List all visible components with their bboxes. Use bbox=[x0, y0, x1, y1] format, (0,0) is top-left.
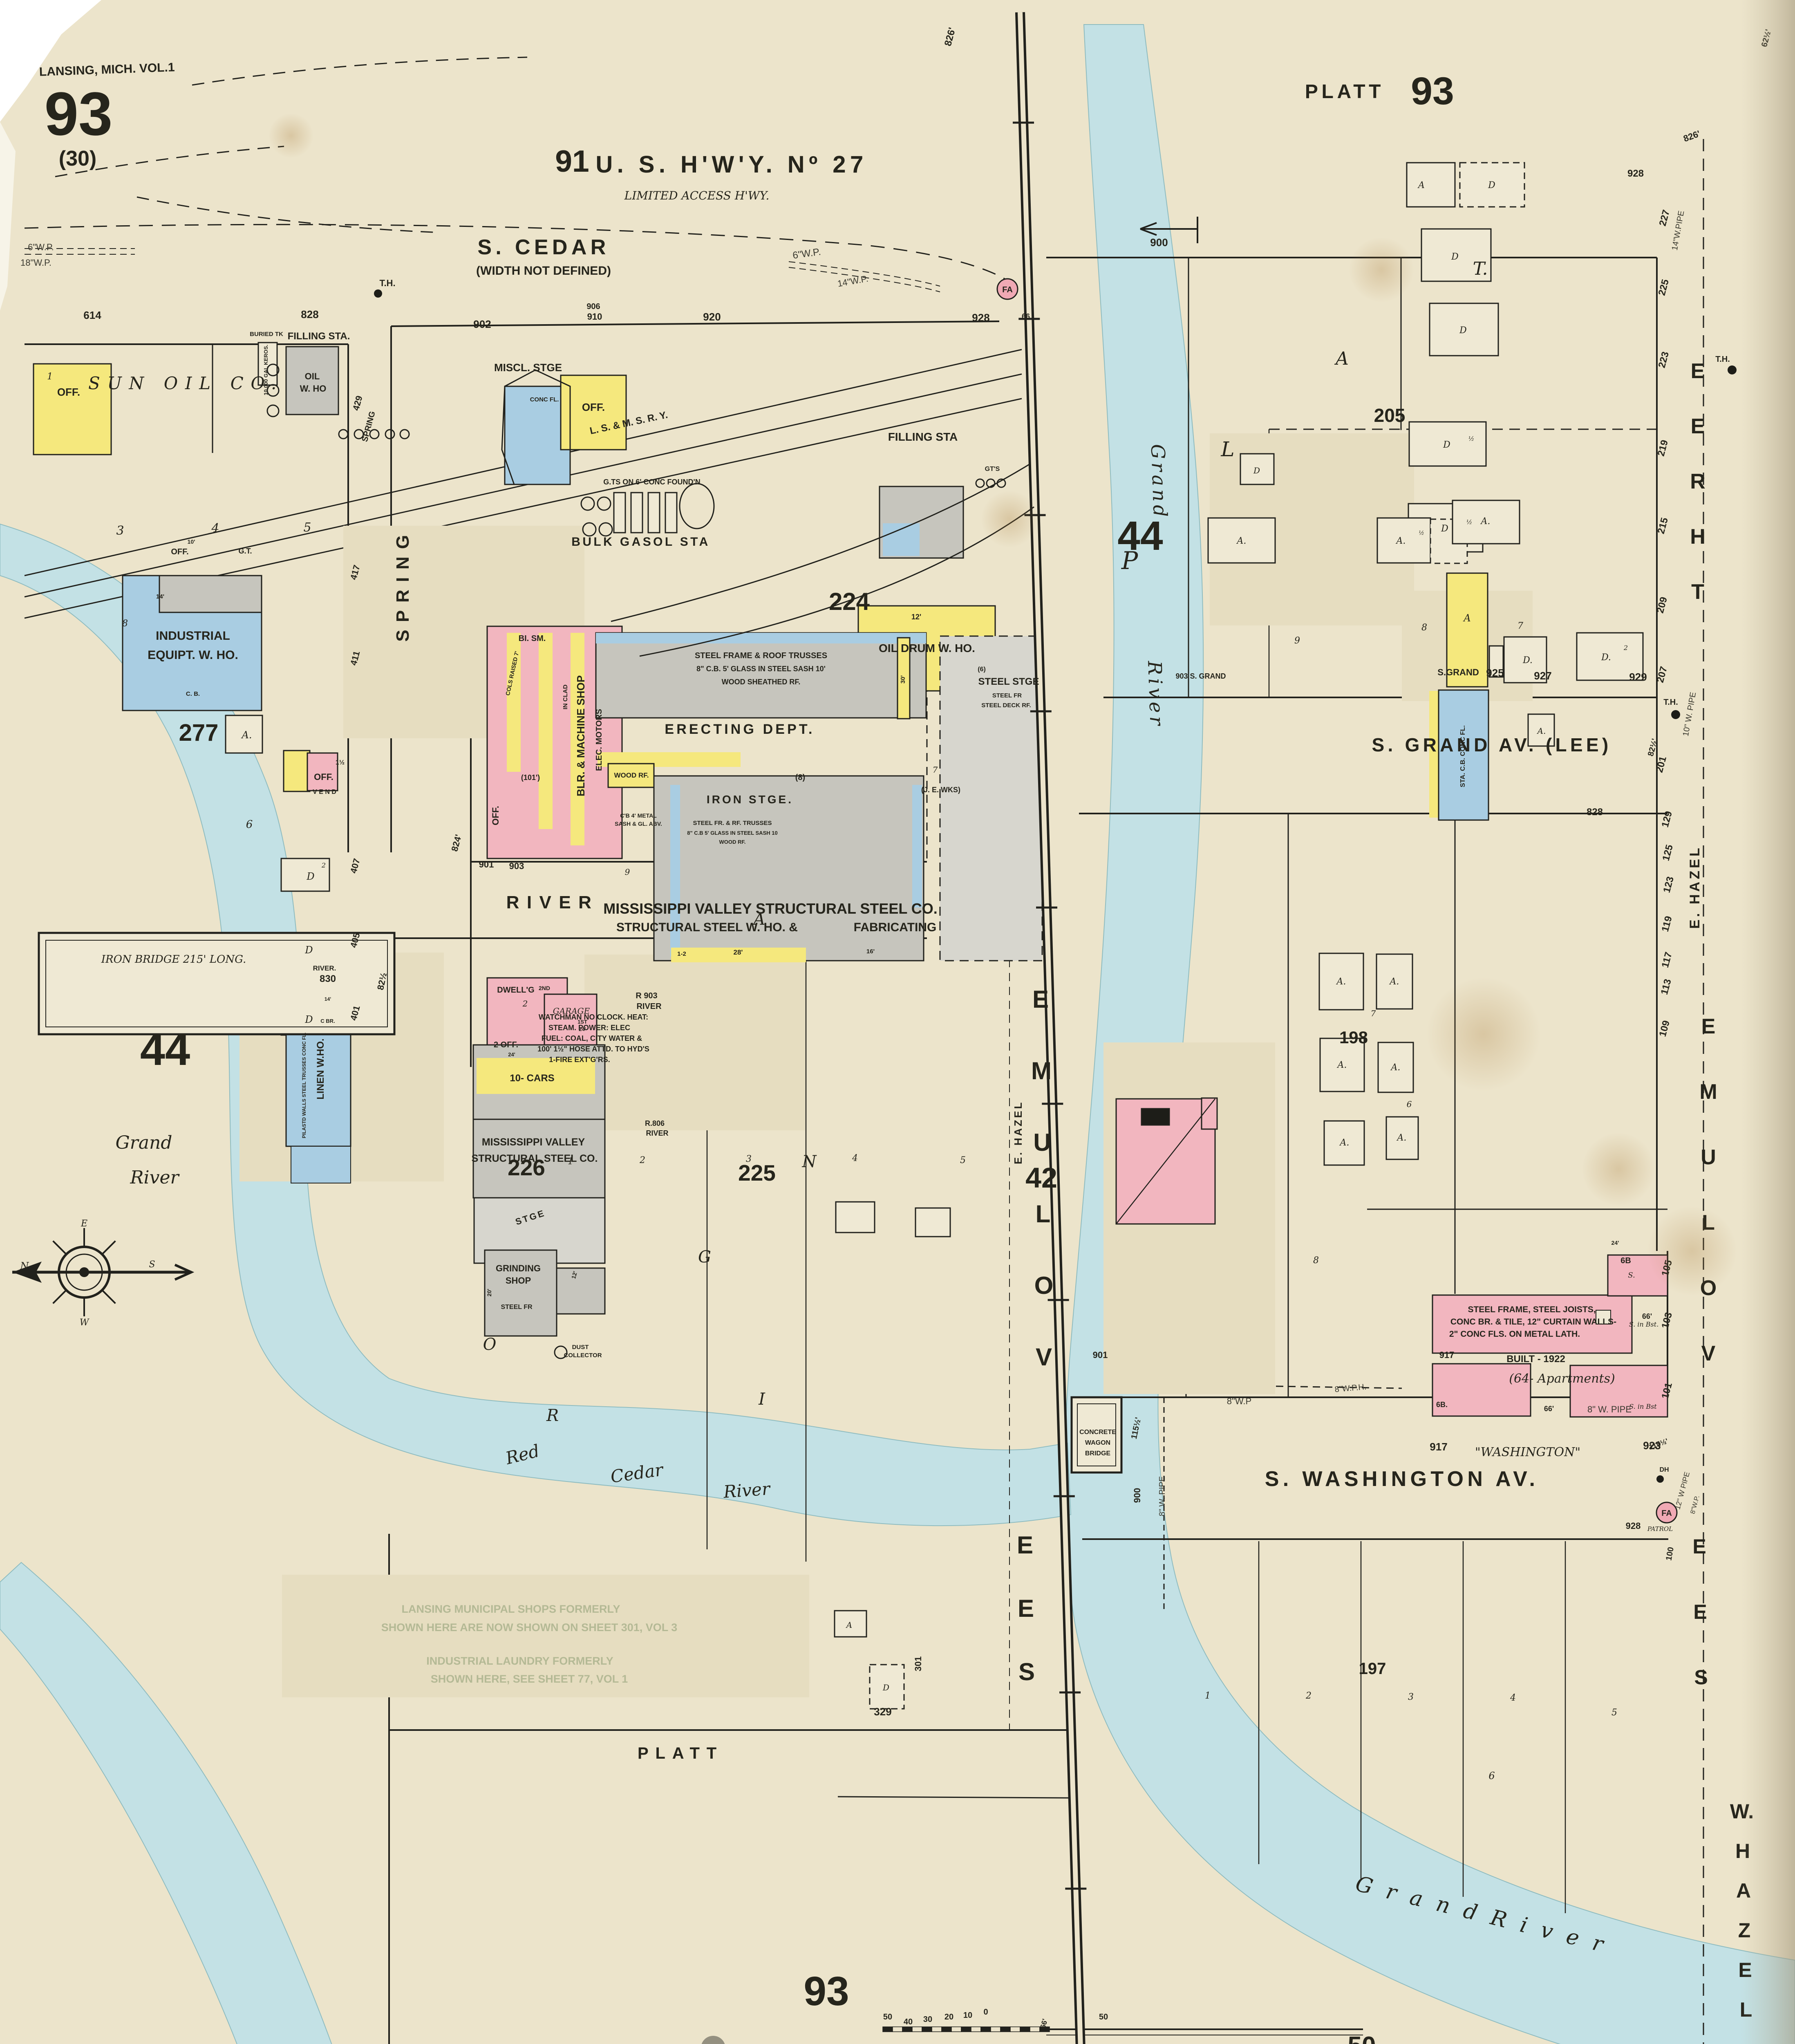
map-label: (WIDTH NOT DEFINED) bbox=[476, 264, 611, 278]
map-label: D bbox=[1459, 325, 1467, 336]
map-label: PILASTD WALLS STEEL TRUSSES CONC FL. bbox=[301, 1033, 307, 1138]
map-label: WOOD RF. bbox=[719, 839, 746, 845]
map-label: 1 bbox=[1205, 1691, 1211, 1701]
map-label: 906 bbox=[586, 302, 600, 311]
building-footprint bbox=[883, 523, 920, 556]
map-label: River bbox=[130, 1167, 180, 1188]
scale-bar-segment bbox=[942, 2027, 951, 2032]
block-44-left: 44 bbox=[140, 1024, 190, 1075]
tank-circle bbox=[1671, 710, 1680, 719]
map-label: A. bbox=[1336, 977, 1346, 987]
map-label: FABRICATING bbox=[854, 921, 937, 934]
map-label: C. B. bbox=[186, 690, 200, 697]
map-label: 928 bbox=[972, 312, 989, 324]
block-205: 205 bbox=[1374, 405, 1406, 426]
map-label: 30 bbox=[923, 2015, 932, 2024]
map-label: E bbox=[1691, 359, 1705, 383]
map-label: MISSISSIPPI VALLEY bbox=[482, 1136, 585, 1148]
map-label: E bbox=[1691, 415, 1705, 438]
map-label: 10- CARS bbox=[510, 1073, 554, 1084]
map-label: INDUSTRIAL LAUNDRY FORMERLY bbox=[426, 1655, 613, 1667]
map-label: River bbox=[723, 1479, 772, 1502]
map-label: A. bbox=[1339, 1138, 1350, 1148]
map-label: 2ND bbox=[539, 985, 550, 991]
map-label: RIVER. bbox=[313, 964, 336, 972]
scale-bar-segment bbox=[991, 2027, 1000, 2032]
page-edge-shadow bbox=[1741, 0, 1795, 2044]
map-label: 2" CONC FLS. ON METAL LATH. bbox=[1449, 1329, 1580, 1339]
map-label: GT'S bbox=[985, 466, 1000, 473]
map-label: 900 bbox=[1150, 236, 1168, 249]
map-label: 5 bbox=[960, 1155, 966, 1165]
scale-bar-segment bbox=[1020, 2027, 1030, 2032]
sheet-number-top-right: 93 bbox=[1411, 69, 1454, 113]
map-label: D bbox=[1488, 180, 1495, 191]
map-label: D bbox=[882, 1683, 889, 1692]
map-label: 1-FIRE EXT'G'RS. bbox=[549, 1056, 610, 1064]
map-label: DWELL'G bbox=[497, 986, 534, 995]
scale-bar-segment bbox=[951, 2027, 961, 2032]
map-label: 14' bbox=[325, 996, 331, 1002]
map-label: O bbox=[1034, 1272, 1054, 1299]
map-label: G bbox=[698, 1248, 711, 1266]
map-label: A bbox=[1463, 612, 1470, 624]
building-footprint bbox=[648, 493, 660, 533]
map-label: R 903 bbox=[636, 991, 657, 1000]
map-label: MISCL. STGE bbox=[494, 361, 562, 374]
map-label: 66 bbox=[1022, 312, 1030, 320]
building-footprint bbox=[584, 955, 805, 1130]
map-label: (J. E. WKS) bbox=[921, 786, 960, 794]
map-label: 329 bbox=[874, 1706, 891, 1718]
sheet-number-50: 50 bbox=[1348, 2032, 1376, 2044]
map-label: G.TS ON 6' CONC FOUND'N bbox=[603, 478, 701, 486]
map-label: H bbox=[1690, 525, 1705, 549]
map-label: WAGON bbox=[1085, 1439, 1110, 1446]
map-label: D bbox=[1253, 466, 1260, 475]
map-label: SHOWN HERE, SEE SHEET 77, VOL 1 bbox=[431, 1673, 628, 1685]
building-footprint bbox=[915, 1208, 950, 1237]
map-label: D bbox=[1443, 440, 1450, 450]
map-label: S bbox=[1018, 1658, 1035, 1685]
map-label: WATCHMAN NO CLOCK. HEAT: bbox=[539, 1013, 648, 1021]
map-label: R bbox=[1690, 470, 1705, 493]
map-label: WOOD RF. bbox=[614, 771, 649, 779]
map-label: 900 bbox=[1132, 1488, 1142, 1503]
map-label: (6) bbox=[978, 666, 986, 673]
map-label: A. bbox=[241, 729, 252, 741]
map-label: (101') bbox=[521, 773, 540, 782]
map-label: 902 bbox=[473, 318, 491, 330]
map-label: V bbox=[1701, 1342, 1716, 1365]
map-label: 24' bbox=[1611, 1239, 1619, 1246]
map-label: GRINDING bbox=[496, 1263, 541, 1273]
map-label: 828 bbox=[301, 308, 318, 320]
miss-valley-steel: MISSISSIPPI VALLEY STRUCTURAL STEEL CO. bbox=[603, 900, 937, 917]
map-label: 4 bbox=[211, 521, 219, 536]
map-label: G.T. bbox=[238, 547, 252, 555]
map-label: 830 bbox=[320, 973, 336, 984]
map-label: BURIED TK bbox=[250, 331, 283, 338]
map-label: CONCRETE bbox=[1079, 1429, 1116, 1436]
map-label: ELEC. MOTORS bbox=[595, 709, 604, 771]
building-footprint bbox=[614, 493, 625, 533]
paper-stain bbox=[1647, 1206, 1737, 1296]
map-label: OFF. bbox=[171, 547, 188, 556]
map-label: S. bbox=[1628, 1271, 1635, 1280]
scale-bar-segment bbox=[971, 2027, 981, 2032]
street-platt-top: PLATT bbox=[1305, 81, 1384, 103]
map-label: OIL bbox=[305, 371, 320, 381]
map-label: S.GRAND bbox=[1437, 667, 1479, 677]
map-label: C BR. bbox=[320, 1018, 335, 1024]
scale-bar-segment bbox=[912, 2027, 922, 2032]
map-label: 8" W. PIPE bbox=[1158, 1476, 1167, 1516]
map-label: S. in Bst. bbox=[1629, 1320, 1659, 1328]
map-label: 9 bbox=[625, 867, 630, 877]
map-label: 8" C.B. 5' GLASS IN STEEL SASH 10' bbox=[696, 665, 826, 673]
map-label: COLLECTOR bbox=[564, 1352, 602, 1359]
map-label: E bbox=[1701, 1015, 1716, 1038]
map-label: RIVER bbox=[646, 1129, 668, 1137]
map-label: OFF. bbox=[314, 772, 333, 782]
map-label: LANSING MUNICIPAL SHOPS FORMERLY bbox=[401, 1603, 620, 1615]
map-label: 2 bbox=[522, 999, 528, 1009]
map-label: 0 bbox=[983, 2008, 988, 2017]
map-label: OFF. bbox=[582, 401, 605, 413]
building-footprint bbox=[39, 933, 394, 1034]
map-label: OFF. bbox=[57, 386, 80, 398]
sheet-number-bottom: 93 bbox=[803, 1968, 849, 2014]
building-footprint bbox=[631, 493, 642, 533]
map-label: IN CLAD bbox=[562, 684, 569, 709]
street-e-hazel-right: E. HAZEL bbox=[1687, 845, 1703, 929]
street-spring: SPRING bbox=[393, 527, 413, 642]
map-label: A. bbox=[1397, 1133, 1407, 1143]
map-label: 10 bbox=[963, 2011, 972, 2020]
map-label: D bbox=[306, 871, 314, 882]
map-label: ERECTING DEPT. bbox=[665, 722, 815, 737]
map-label: Grand bbox=[1147, 444, 1171, 520]
map-label: E bbox=[1692, 1535, 1706, 1558]
building-footprint bbox=[291, 1146, 351, 1183]
map-label: FILLING STA. bbox=[288, 331, 350, 342]
map-label: 7 bbox=[933, 765, 938, 775]
map-label: (64- Apartments) bbox=[1509, 1372, 1615, 1386]
map-label: 20 bbox=[945, 2013, 953, 2022]
map-label: A. bbox=[1236, 536, 1247, 546]
map-label: P bbox=[1121, 547, 1139, 575]
map-label: SHOWN HERE ARE NOW SHOWN ON SHEET 301, V… bbox=[381, 1621, 678, 1634]
block-198: 198 bbox=[1339, 1028, 1368, 1047]
map-label: E bbox=[1018, 1595, 1034, 1622]
map-label: S. in Bst bbox=[1629, 1403, 1657, 1410]
map-label: 100' 1½" HOSE ATTD. TO HYD'S bbox=[537, 1045, 649, 1053]
map-label: 24' bbox=[508, 1051, 515, 1058]
map-label: 6"W.P. bbox=[28, 242, 54, 252]
map-label: 7 bbox=[1517, 621, 1523, 631]
map-label: 18"W.P. bbox=[20, 258, 51, 268]
map-label: 20' bbox=[486, 1289, 492, 1297]
sanborn-map-sheet: LANSING, MICH. VOL.193(30)PLATT9391U. S.… bbox=[0, 0, 1795, 2044]
map-label: L bbox=[1220, 437, 1234, 461]
map-label: OFF. bbox=[490, 806, 501, 825]
map-label: ½ bbox=[1419, 530, 1424, 536]
map-label: 901 bbox=[479, 859, 494, 870]
map-label: 903 bbox=[509, 861, 524, 871]
map-label: N bbox=[20, 1260, 29, 1272]
map-label: (30) bbox=[59, 147, 96, 170]
map-label: 8 bbox=[122, 619, 128, 629]
building-footprint bbox=[1407, 163, 1455, 207]
map-label: 3 bbox=[116, 524, 124, 538]
map-label: STEEL FRAME, STEEL JOISTS, bbox=[1468, 1305, 1596, 1314]
map-label: WOOD SHEATHED RF. bbox=[722, 678, 801, 686]
street-river: RIVER bbox=[506, 892, 599, 912]
tank-circle bbox=[1656, 1475, 1664, 1483]
map-label: A bbox=[1417, 180, 1425, 191]
map-label: I bbox=[758, 1390, 765, 1409]
map-label: ½ bbox=[1468, 435, 1475, 442]
paper-stain bbox=[269, 113, 313, 158]
map-label: 6B. bbox=[1436, 1401, 1448, 1409]
map-label: STEAM. POWER: ELEC bbox=[548, 1024, 630, 1032]
map-label: BUILT - 1922 bbox=[1506, 1354, 1565, 1365]
map-label: PATROL bbox=[1647, 1525, 1673, 1533]
map-label: IRON STGE. bbox=[707, 793, 793, 806]
map-label: E bbox=[1693, 1600, 1707, 1623]
map-label: 929 bbox=[1629, 671, 1647, 683]
map-label: 7 bbox=[1371, 1009, 1376, 1018]
block-225: 225 bbox=[738, 1160, 776, 1186]
map-label: T.H. bbox=[1663, 698, 1678, 707]
map-label: 1 bbox=[47, 372, 53, 382]
map-label: 910 bbox=[587, 312, 602, 322]
building-footprint bbox=[284, 751, 310, 791]
map-label: BRIDGE bbox=[1085, 1450, 1111, 1457]
scale-bar-segment bbox=[883, 2027, 893, 2032]
map-label: INDUSTRIAL bbox=[156, 629, 230, 643]
map-label: 4 bbox=[852, 1153, 858, 1163]
map-label: 4 bbox=[1510, 1693, 1516, 1703]
map-label: River bbox=[1144, 660, 1168, 729]
map-label: 928 bbox=[1626, 1521, 1641, 1531]
map-label: 828 bbox=[1587, 807, 1603, 818]
map-label: L bbox=[1036, 1200, 1051, 1228]
map-label: T.H. bbox=[379, 278, 395, 288]
map-label: 8" C.B 5' GLASS IN STEEL SASH 10 bbox=[687, 830, 777, 836]
map-label: T bbox=[1691, 580, 1704, 604]
map-label: A bbox=[846, 1620, 852, 1630]
street-s-grand: S. GRAND AV. (LEE) bbox=[1372, 734, 1612, 755]
paper-stain bbox=[1582, 1132, 1655, 1206]
map-label: STEEL STGE bbox=[978, 676, 1039, 687]
scale-bar-segment bbox=[961, 2027, 971, 2032]
map-label: 2 bbox=[321, 861, 326, 869]
map-label: E bbox=[81, 1219, 87, 1229]
tank-circle bbox=[374, 289, 382, 298]
map-label: 66' bbox=[1642, 1312, 1652, 1320]
building-footprint bbox=[159, 576, 262, 612]
map-label: ½ bbox=[1466, 518, 1473, 526]
map-label: 928 bbox=[1627, 168, 1644, 179]
map-label: D bbox=[1451, 252, 1459, 262]
map-label: 6B bbox=[1620, 1256, 1631, 1265]
building-footprint bbox=[539, 633, 553, 829]
map-label: CONC BR. & TILE, 12" CURTAIN WALLS- bbox=[1450, 1317, 1616, 1327]
block-42: 42 bbox=[1025, 1162, 1057, 1194]
map-label: 12' bbox=[911, 613, 921, 621]
scale-bar-segment bbox=[893, 2027, 902, 2032]
map-label: U bbox=[1701, 1145, 1716, 1169]
building-footprint bbox=[836, 1202, 875, 1233]
map-label: SASH & GL. ABV. bbox=[615, 820, 662, 827]
map-label: 3 bbox=[1408, 1692, 1414, 1702]
map-label: D bbox=[1441, 524, 1448, 534]
map-label: STEEL FR. & RF. TRUSSES bbox=[693, 820, 772, 827]
scale-bar-segment bbox=[1000, 2027, 1010, 2032]
map-label: U bbox=[1033, 1129, 1051, 1156]
map-label: 14' bbox=[156, 593, 164, 600]
map-label: FA bbox=[1002, 285, 1013, 294]
map-label: 10,000 GAL KEROS. bbox=[263, 345, 269, 395]
map-label: STEEL FR bbox=[992, 692, 1022, 699]
map-label: 2 bbox=[639, 1155, 645, 1165]
map-label: S bbox=[1694, 1666, 1708, 1689]
map-canvas: LANSING, MICH. VOL.193(30)PLATT9391U. S.… bbox=[0, 0, 1795, 2044]
map-label: D bbox=[304, 1014, 313, 1025]
map-label: 920 bbox=[703, 311, 721, 323]
map-label: N bbox=[802, 1152, 817, 1171]
map-label: 8" W. PIPE bbox=[1587, 1404, 1632, 1414]
map-label: 50 bbox=[883, 2013, 892, 2022]
sun-oil-co: SUN OIL CO. bbox=[88, 373, 284, 393]
map-label: A. bbox=[1537, 726, 1546, 736]
map-label: CONC FL. bbox=[530, 396, 559, 403]
map-label: R bbox=[546, 1406, 559, 1425]
map-label: 301 bbox=[913, 1656, 923, 1672]
scale-bar-segment bbox=[1010, 2027, 1020, 2032]
map-label: EQUIPT. W. HO. bbox=[148, 648, 238, 662]
map-label: 5 bbox=[303, 520, 311, 535]
map-label: A. bbox=[1389, 977, 1399, 987]
map-label: FA bbox=[1661, 1509, 1672, 1518]
map-label: A. bbox=[1337, 1060, 1347, 1070]
map-label: 901 bbox=[1093, 1350, 1108, 1360]
map-label: 8"W.P bbox=[1227, 1396, 1251, 1406]
map-label: 66' bbox=[1544, 1405, 1554, 1413]
map-label: M bbox=[1699, 1080, 1717, 1104]
building-footprint bbox=[596, 633, 926, 718]
map-label: W. HO bbox=[300, 383, 327, 394]
map-label: 925 bbox=[1486, 667, 1504, 679]
block-197: 197 bbox=[1359, 1660, 1386, 1678]
map-label: W bbox=[80, 1318, 90, 1328]
map-label: A. bbox=[1480, 516, 1491, 527]
map-label: BLR. & MACHINE SHOP bbox=[575, 675, 587, 796]
map-label: S bbox=[149, 1260, 155, 1270]
paper-stain bbox=[1426, 977, 1541, 1091]
map-label: RIVER bbox=[636, 1002, 662, 1011]
scale-bar-segment bbox=[922, 2027, 932, 2032]
map-label: 6 bbox=[1488, 1770, 1495, 1782]
map-label: STRUCTURAL STEEL CO. bbox=[472, 1153, 598, 1164]
map-label: FILLING STA bbox=[888, 430, 958, 443]
map-label: 8 bbox=[1313, 1255, 1319, 1266]
map-label: Grand bbox=[116, 1132, 172, 1153]
map-label: STRUCTURAL STEEL W. HO. & bbox=[616, 921, 798, 934]
map-label: 614 bbox=[83, 309, 101, 321]
map-label: STEEL FR bbox=[501, 1304, 532, 1311]
map-label: STEEL FRAME & ROOF TRUSSES bbox=[695, 651, 827, 660]
paper-stain bbox=[1349, 237, 1414, 303]
map-label: M bbox=[1031, 1057, 1052, 1085]
map-label: 903 S. GRAND bbox=[1175, 672, 1226, 680]
map-label: C'B 4' METAL bbox=[620, 812, 657, 819]
map-label: FUEL: COAL, CITY WATER & bbox=[542, 1034, 642, 1042]
scale-bar-segment bbox=[932, 2027, 942, 2032]
map-label: (8) bbox=[795, 773, 805, 782]
map-label: 3 bbox=[746, 1154, 752, 1164]
map-label: DUST bbox=[572, 1344, 589, 1351]
scale-bar-segment bbox=[902, 2027, 912, 2032]
map-label: T.H. bbox=[1715, 355, 1730, 364]
scale-bar-segment bbox=[981, 2027, 991, 2032]
map-label: 1½ bbox=[336, 759, 345, 766]
map-label: 8 bbox=[1421, 623, 1427, 633]
map-label: 16' bbox=[866, 948, 875, 955]
map-label: V bbox=[1036, 1343, 1052, 1371]
map-label: A bbox=[1334, 348, 1349, 369]
map-label: D bbox=[304, 944, 313, 956]
map-label: BULK GASOL STA bbox=[571, 535, 710, 549]
map-label: LIMITED ACCESS H'WY. bbox=[624, 189, 770, 202]
block-224: 224 bbox=[829, 588, 870, 615]
map-label: D. bbox=[1601, 652, 1611, 663]
map-label: D. bbox=[1522, 655, 1533, 666]
linen-warehouse: LINEN W.HO. bbox=[315, 1038, 326, 1099]
block-277: 277 bbox=[179, 719, 219, 746]
building-footprint bbox=[665, 493, 677, 533]
map-label: 10' bbox=[188, 538, 195, 545]
paper-stain bbox=[981, 491, 1038, 548]
map-label: 50 bbox=[1099, 2013, 1108, 2022]
map-label: A. bbox=[1396, 536, 1406, 546]
map-label: 2 bbox=[1305, 1691, 1312, 1701]
map-label: A. bbox=[1390, 1062, 1401, 1073]
street-s-cedar: S. CEDAR bbox=[477, 235, 609, 259]
map-label: 40 bbox=[904, 2017, 913, 2026]
map-label: STEEL DECK RF. bbox=[981, 702, 1031, 709]
washington-apartments: "WASHINGTON" bbox=[1475, 1445, 1580, 1459]
building-footprint bbox=[1141, 1109, 1169, 1125]
map-label: 30' bbox=[900, 675, 906, 684]
map-label: OIL DRUM W. HO. bbox=[879, 642, 975, 654]
street-e-hazel-left: E. HAZEL bbox=[1012, 1100, 1024, 1164]
map-label: 917 bbox=[1439, 1350, 1455, 1360]
map-label: 917 bbox=[1430, 1441, 1447, 1453]
street-s-washington: S. WASHINGTON AV. bbox=[1265, 1467, 1539, 1491]
map-label: R.806 bbox=[645, 1119, 665, 1127]
map-label: BI. SM. bbox=[519, 634, 546, 643]
map-label: E bbox=[1017, 1531, 1033, 1559]
map-label: 91 bbox=[555, 144, 589, 178]
map-label: SHOP bbox=[506, 1275, 531, 1286]
map-label: A bbox=[752, 910, 765, 929]
iron-bridge-label: IRON BRIDGE 215' LONG. bbox=[101, 953, 246, 966]
map-label: 927 bbox=[1534, 670, 1551, 682]
tank-circle bbox=[1728, 365, 1737, 374]
